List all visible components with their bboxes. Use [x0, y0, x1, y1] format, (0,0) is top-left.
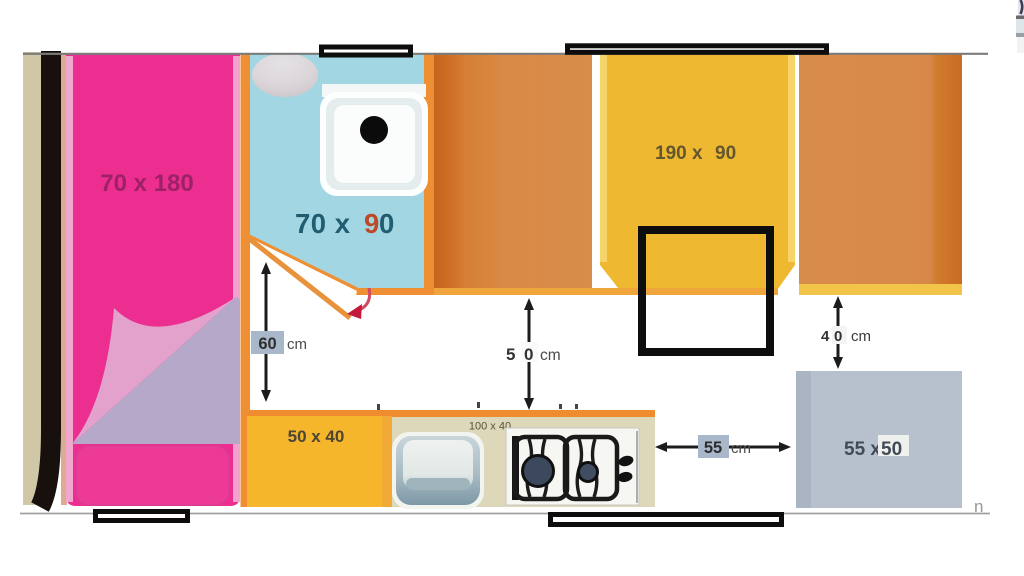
svg-text:60: 60 — [258, 335, 276, 353]
svg-text:5: 5 — [506, 345, 515, 364]
svg-text:9: 9 — [364, 208, 379, 239]
svg-text:100 x 40: 100 x 40 — [469, 421, 511, 433]
svg-text:cm: cm — [851, 328, 871, 345]
svg-text:50: 50 — [881, 439, 902, 460]
svg-text:55: 55 — [704, 439, 722, 457]
svg-text:4: 4 — [821, 328, 830, 345]
svg-text:0: 0 — [834, 328, 842, 345]
svg-text:70 x: 70 x — [295, 208, 351, 239]
svg-text:0: 0 — [524, 345, 533, 364]
svg-text:cm: cm — [731, 440, 751, 457]
svg-text:cm: cm — [540, 347, 561, 364]
svg-text:50 x 40: 50 x 40 — [288, 427, 345, 446]
svg-text:55 x: 55 x — [844, 439, 881, 460]
svg-text:cm: cm — [287, 336, 307, 353]
svg-text:0: 0 — [379, 208, 394, 239]
svg-text:90: 90 — [715, 143, 736, 164]
svg-text:70 x 180: 70 x 180 — [100, 170, 193, 197]
svg-text:n: n — [974, 497, 983, 516]
svg-text:190 x: 190 x — [655, 143, 703, 164]
